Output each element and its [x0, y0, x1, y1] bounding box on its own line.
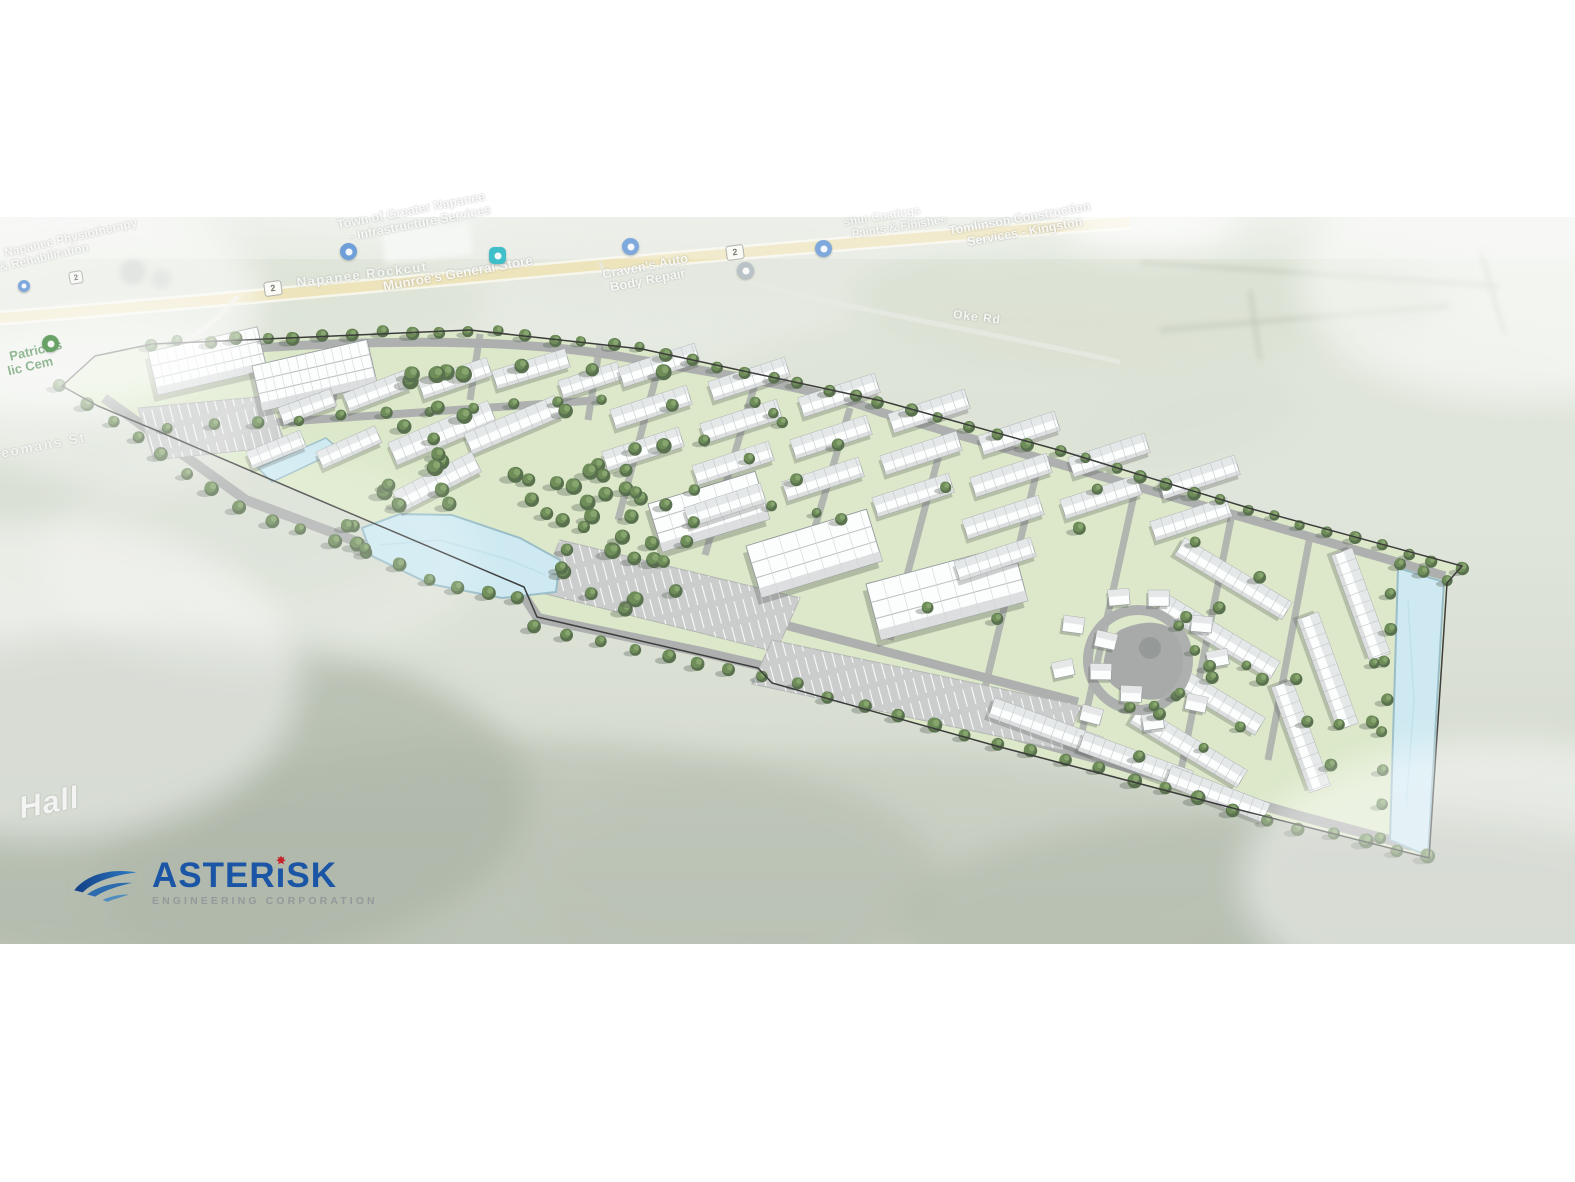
asterisk-logo: ASTERıSK ENGINEERING CORPORATION: [68, 858, 378, 907]
logo-subtitle: ENGINEERING CORPORATION: [152, 895, 378, 907]
logo-swoosh-icon: [68, 866, 146, 904]
maple-leaf-icon: [275, 855, 286, 866]
aerial-site-rendering-page: Napanee Physiotherapy & Rehabilitation T…: [0, 0, 1575, 1182]
site-plan-rendering: [0, 0, 1575, 1182]
logo-wordmark: ASTERıSK: [152, 858, 378, 893]
